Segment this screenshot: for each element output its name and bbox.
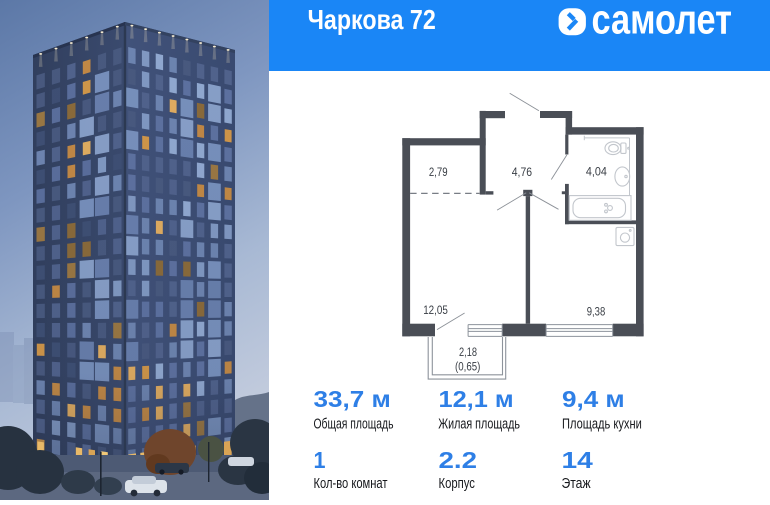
svg-text:4,76: 4,76 (512, 165, 532, 179)
svg-text:2,18: 2,18 (459, 345, 477, 359)
svg-text:2.2: 2.2 (439, 447, 478, 473)
svg-text:9,38: 9,38 (587, 305, 606, 319)
svg-text:2,79: 2,79 (429, 165, 448, 179)
svg-text:Корпус: Корпус (439, 475, 476, 492)
svg-text:самолет: самолет (592, 0, 733, 42)
svg-text:Этаж: Этаж (562, 475, 591, 492)
svg-text:1: 1 (314, 447, 326, 473)
svg-text:Жилая площадь: Жилая площадь (438, 416, 520, 433)
svg-text:9,4 м: 9,4 м (562, 386, 625, 412)
svg-text:Чаркова 72: Чаркова 72 (308, 4, 436, 35)
svg-text:4,04: 4,04 (586, 165, 607, 179)
svg-text:14: 14 (562, 447, 593, 473)
svg-text:Площадь кухни: Площадь кухни (562, 416, 642, 433)
svg-text:(0,65): (0,65) (455, 359, 480, 373)
svg-text:12,1 м: 12,1 м (439, 386, 514, 412)
svg-text:Кол-во комнат: Кол-во комнат (314, 475, 388, 492)
svg-text:Общая площадь: Общая площадь (314, 416, 394, 433)
svg-text:33,7 м: 33,7 м (314, 386, 391, 412)
svg-text:12,05: 12,05 (423, 303, 448, 317)
